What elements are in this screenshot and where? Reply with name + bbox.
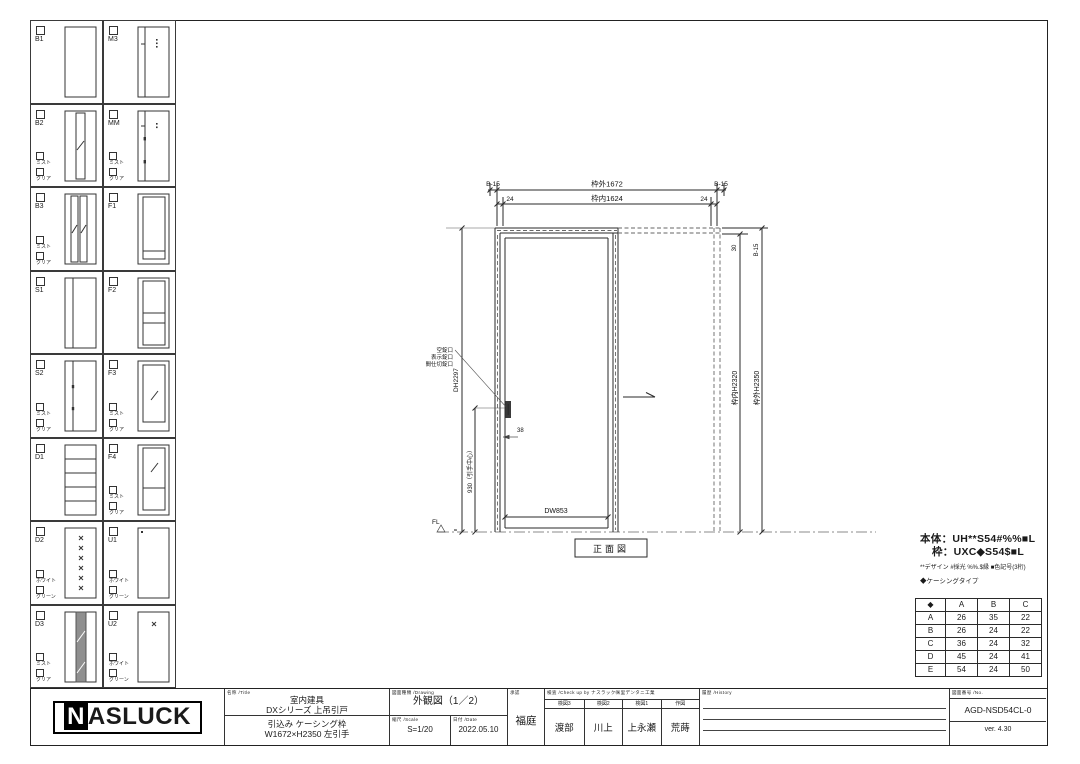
drawing-type-cell: 図面種類 /Drawing 外観図（1／2） 縮尺 /Scale S=1/20 …	[389, 689, 507, 745]
dim-label: DH2297	[453, 368, 460, 392]
door-thumbnail	[64, 360, 98, 432]
table-cell: E	[916, 664, 946, 677]
dim-label: B-15	[486, 181, 500, 188]
finish-label: ホワイト	[109, 578, 129, 584]
dw-dimension	[503, 515, 611, 520]
drawing-number-cell: 図面番号 /No. AGD-NSD54CL-0 ver. 4.30	[949, 689, 1046, 745]
door-type-cell-d3: D3 ミスト クリア	[30, 605, 103, 689]
product-size: W1672×H2350 左引手	[225, 729, 389, 739]
floor-gap-label: 8	[453, 528, 458, 531]
floor-level-triangle	[437, 525, 445, 532]
finish-label: グリーン	[109, 594, 129, 600]
door-type-cell-b3: B3 ミスト クリア	[30, 187, 103, 271]
table-cell: D	[916, 651, 946, 664]
door-type-code: S1	[35, 287, 44, 295]
checker-name: 川上	[584, 709, 623, 745]
date-header: 日付 /Date	[451, 716, 506, 722]
finish-checkbox[interactable]	[36, 653, 44, 661]
door-type-code: D1	[35, 454, 44, 462]
right-dimensions	[722, 226, 768, 535]
history-lines	[700, 695, 949, 731]
finish-label: ミスト	[109, 160, 124, 166]
dim-label: B-15	[754, 243, 760, 256]
spec-notes: 本体：UH**S54#%%■L 枠：UXC◆S54$■L **デザイン #採光 …	[920, 533, 1080, 585]
finish-label: ミスト	[36, 411, 51, 417]
door-type-cell-f4: F4 ミスト クリア	[103, 438, 176, 522]
table-cell: B	[916, 625, 946, 638]
finish-checkbox[interactable]	[36, 403, 44, 411]
casing-type-note: ◆ケーシングタイプ	[920, 575, 1080, 585]
approval-cell: 承認 福庭	[507, 689, 544, 745]
logo-rest: ASLUCK	[88, 703, 191, 730]
door-type-cell-u1: U1 ホワイト グリーン	[103, 521, 176, 605]
dim-label: 24	[700, 196, 708, 203]
lock-label: 表示錠口	[431, 353, 453, 361]
door-type-checkbox[interactable]	[109, 26, 118, 35]
finish-checkbox[interactable]	[109, 653, 117, 661]
door-type-cell-f3: F3 ミスト クリア	[103, 354, 176, 438]
table-cell: 24	[978, 638, 1010, 651]
table-cell: 36	[946, 638, 978, 651]
title-cell: 名称 /Title 室内建具 DXシリーズ 上吊引戸 引込み ケーシング枠 W1…	[224, 689, 389, 745]
finish-label: ミスト	[36, 160, 51, 166]
drawing-version: ver. 4.30	[950, 722, 1046, 738]
nasluck-logo: NASLUCK	[53, 701, 202, 734]
door-type-checkbox[interactable]	[36, 193, 45, 202]
door-type-code: MM	[108, 120, 120, 128]
door-type-checkbox[interactable]	[109, 611, 118, 620]
door-type-cell-u2: U2 ホワイト グリーン	[103, 605, 176, 689]
logo-cell: NASLUCK	[31, 689, 224, 745]
door-type-checkbox[interactable]	[36, 277, 45, 286]
door-type-checkbox[interactable]	[109, 110, 118, 119]
door-thumbnail	[137, 611, 171, 683]
finish-checkbox[interactable]	[109, 502, 117, 510]
drawing-type: 外観図（1／2）	[390, 695, 507, 708]
table-cell: 54	[946, 664, 978, 677]
pocket-frame	[618, 228, 720, 532]
door-type-code: B1	[35, 36, 44, 44]
logo-initial: N	[64, 703, 88, 730]
finish-label: ミスト	[109, 411, 124, 417]
door-type-code: D3	[35, 621, 44, 629]
finish-label: クリア	[109, 427, 124, 433]
door-type-selector: B1 M3 B2 ミスト クリア MM ミスト	[30, 20, 176, 688]
slide-direction-arrow	[623, 393, 655, 398]
finish-label: グリーン	[36, 594, 56, 600]
dim-label: 枠外1672	[591, 179, 623, 189]
finish-label: クリア	[109, 176, 124, 182]
top-dimensions	[488, 183, 727, 226]
finish-checkbox[interactable]	[109, 486, 117, 494]
table-header-cell: C	[1010, 599, 1042, 612]
door-type-checkbox[interactable]	[109, 527, 118, 536]
table-cell: 41	[1010, 651, 1042, 664]
scale-cell: 縮尺 /Scale S=1/20	[390, 716, 450, 745]
table-cell: 22	[1010, 612, 1042, 625]
door-type-cell-m3: M3	[103, 20, 176, 104]
lock-label: 間仕切錠口	[425, 360, 453, 368]
scale-value: S=1/20	[390, 725, 450, 734]
title-block: NASLUCK 名称 /Title 室内建具 DXシリーズ 上吊引戸 引込み ケ…	[30, 688, 1048, 746]
table-row: D 45 24 41	[916, 651, 1042, 664]
table-cell: 24	[978, 625, 1010, 638]
dim-label: 枠内H2320	[730, 371, 739, 406]
door-type-code: U1	[108, 537, 117, 545]
date-cell: 日付 /Date 2022.05.10	[450, 716, 506, 745]
door-type-code: S2	[35, 370, 44, 378]
table-cell: 22	[1010, 625, 1042, 638]
door-type-code: B3	[35, 203, 44, 211]
door-type-checkbox[interactable]	[109, 444, 118, 453]
checker-name: 荒蒔	[661, 709, 700, 745]
door-type-cell-f2: F2	[103, 271, 176, 355]
door-type-cell-d1: D1	[30, 438, 103, 522]
finish-checkbox[interactable]	[36, 168, 44, 176]
door-type-checkbox[interactable]	[36, 444, 45, 453]
dim-label: 30	[732, 244, 738, 251]
door-type-checkbox[interactable]	[109, 360, 118, 369]
finish-checkbox[interactable]	[109, 586, 117, 594]
door-type-cell-b1: B1	[30, 20, 103, 104]
date-value: 2022.05.10	[451, 725, 506, 734]
product-category: 室内建具	[225, 695, 389, 705]
product-series: DXシリーズ 上吊引戸	[225, 705, 389, 715]
table-row: B 26 24 22	[916, 625, 1042, 638]
table-cell: 24	[978, 651, 1010, 664]
finish-checkbox[interactable]	[36, 586, 44, 594]
check-role: 検図1	[622, 700, 661, 709]
door-thumbnail	[137, 26, 171, 98]
checker-name: 上永瀬	[622, 709, 661, 745]
table-cell: 50	[1010, 664, 1042, 677]
finish-label: クリア	[36, 176, 51, 182]
check-header: 検査 /Check up by ナスラック㈱里デンタニ工業	[545, 689, 699, 699]
door-type-checkbox[interactable]	[36, 611, 45, 620]
door-type-code: F1	[108, 203, 116, 211]
door-type-cell-d2: D2 ホワイト グリーン	[30, 521, 103, 605]
finish-label: ミスト	[36, 661, 51, 667]
door-type-checkbox[interactable]	[109, 277, 118, 286]
door-type-code: M3	[108, 36, 118, 44]
finish-checkbox[interactable]	[36, 669, 44, 677]
finish-label: ホワイト	[109, 661, 129, 667]
table-cell: 26	[946, 612, 978, 625]
finish-checkbox[interactable]	[36, 236, 44, 244]
finish-label: グリーン	[109, 677, 129, 683]
lock-leader-line	[455, 350, 507, 408]
door-type-checkbox[interactable]	[36, 360, 45, 369]
table-header-cell: ◆	[916, 599, 946, 612]
dim-label: 枠内1624	[591, 193, 623, 203]
finish-checkbox[interactable]	[109, 669, 117, 677]
finish-checkbox[interactable]	[36, 570, 44, 578]
dim-label: 930（引手中心）	[466, 447, 474, 493]
finish-checkbox[interactable]	[109, 570, 117, 578]
door-thumbnail	[137, 360, 171, 432]
door-type-checkbox[interactable]	[36, 110, 45, 119]
casing-dimension-table: ◆ A B C A 26 35 22 B 26 24 22 C 36 24 32…	[915, 598, 1042, 677]
table-cell: 32	[1010, 638, 1042, 651]
floor-level-label: FL	[432, 519, 440, 526]
door-type-checkbox[interactable]	[109, 193, 118, 202]
door-type-code: F4	[108, 454, 116, 462]
door-thumbnail	[64, 611, 98, 683]
table-header-cell: B	[978, 599, 1010, 612]
table-cell: 35	[978, 612, 1010, 625]
door-thumbnail	[64, 277, 98, 349]
finish-label: クリア	[36, 677, 51, 683]
door-type-code: B2	[35, 120, 44, 128]
finish-checkbox[interactable]	[109, 152, 117, 160]
product-type: 引込み ケーシング枠	[225, 719, 389, 729]
finish-checkbox[interactable]	[36, 252, 44, 260]
door-type-cell-s2: S2 ミスト クリア	[30, 354, 103, 438]
finish-label: ミスト	[109, 494, 124, 500]
table-cell: C	[916, 638, 946, 651]
door-frame	[495, 228, 618, 532]
finish-label: クリア	[36, 427, 51, 433]
door-thumbnail	[137, 193, 171, 265]
door-thumbnail	[137, 277, 171, 349]
door-type-code: F2	[108, 287, 116, 295]
door-type-checkbox[interactable]	[36, 527, 45, 536]
elevation-drawing: B-15 枠外1672 B-15 24 枠内1624 24 30 B-15 枠内…	[176, 20, 1048, 688]
check-role: 検図3	[545, 700, 584, 709]
door-type-cell-mm: MM ミスト クリア	[103, 104, 176, 188]
scale-header: 縮尺 /Scale	[390, 716, 450, 722]
door-thumbnail	[64, 444, 98, 516]
drawing-number-header: 図面番号 /No.	[950, 689, 1046, 695]
door-thumbnail	[137, 527, 171, 599]
finish-label: クリア	[109, 510, 124, 516]
finish-checkbox[interactable]	[109, 419, 117, 427]
door-type-cell-b2: B2 ミスト クリア	[30, 104, 103, 188]
door-thumbnail	[64, 26, 98, 98]
table-row: E 54 24 50	[916, 664, 1042, 677]
finish-label: ミスト	[36, 244, 51, 250]
door-type-code: D2	[35, 537, 44, 545]
door-thumbnail	[137, 110, 171, 182]
drawing-number: AGD-NSD54CL-0	[950, 698, 1046, 722]
table-cell: A	[916, 612, 946, 625]
dim-label: 24	[506, 196, 514, 203]
door-type-checkbox[interactable]	[36, 26, 45, 35]
table-header-cell: A	[946, 599, 978, 612]
drawing-sheet: B1 M3 B2 ミスト クリア MM ミスト	[0, 0, 1080, 764]
body-spec: 本体：UH**S54#%%■L	[920, 533, 1080, 546]
dim-label: 枠外H2350	[752, 371, 761, 406]
lock-label: 空錠口	[436, 346, 453, 354]
finish-checkbox[interactable]	[36, 152, 44, 160]
finish-checkbox[interactable]	[36, 419, 44, 427]
door-thumbnail	[64, 527, 98, 599]
check-role: 検図2	[584, 700, 623, 709]
table-cell: 24	[978, 664, 1010, 677]
table-header-row: ◆ A B C	[916, 599, 1042, 612]
door-thumbnail	[64, 110, 98, 182]
door-type-cell-f1: F1	[103, 187, 176, 271]
history-cell: 履歴 /History	[699, 689, 949, 745]
finish-checkbox[interactable]	[109, 168, 117, 176]
table-row: C 36 24 32	[916, 638, 1042, 651]
door-type-code: U2	[108, 621, 117, 629]
check-role: 作図	[661, 700, 700, 709]
view-title: 正面図	[593, 544, 629, 554]
approver-name: 福庭	[508, 695, 544, 745]
spec-footnote: **デザイン #採光 %%.$縁 ■色記号(3桁)	[920, 562, 1080, 571]
finish-label: ホワイト	[36, 578, 56, 584]
finish-label: クリア	[36, 260, 51, 266]
table-row: A 26 35 22	[916, 612, 1042, 625]
checkers-cell: 検査 /Check up by ナスラック㈱里デンタニ工業 検図3 検図2 検図…	[544, 689, 699, 745]
finish-checkbox[interactable]	[109, 403, 117, 411]
table-cell: 45	[946, 651, 978, 664]
door-type-cell-s1: S1	[30, 271, 103, 355]
checker-name: 渡部	[545, 709, 584, 745]
dim-label: DW853	[544, 508, 567, 515]
frame-spec: 枠：UXC◆S54$■L	[920, 546, 1080, 559]
dim-label: B-15	[714, 181, 728, 188]
door-thumbnail	[137, 444, 171, 516]
table-cell: 26	[946, 625, 978, 638]
dim-label: 38	[517, 428, 524, 434]
door-type-code: F3	[108, 370, 116, 378]
door-thumbnail	[64, 193, 98, 265]
